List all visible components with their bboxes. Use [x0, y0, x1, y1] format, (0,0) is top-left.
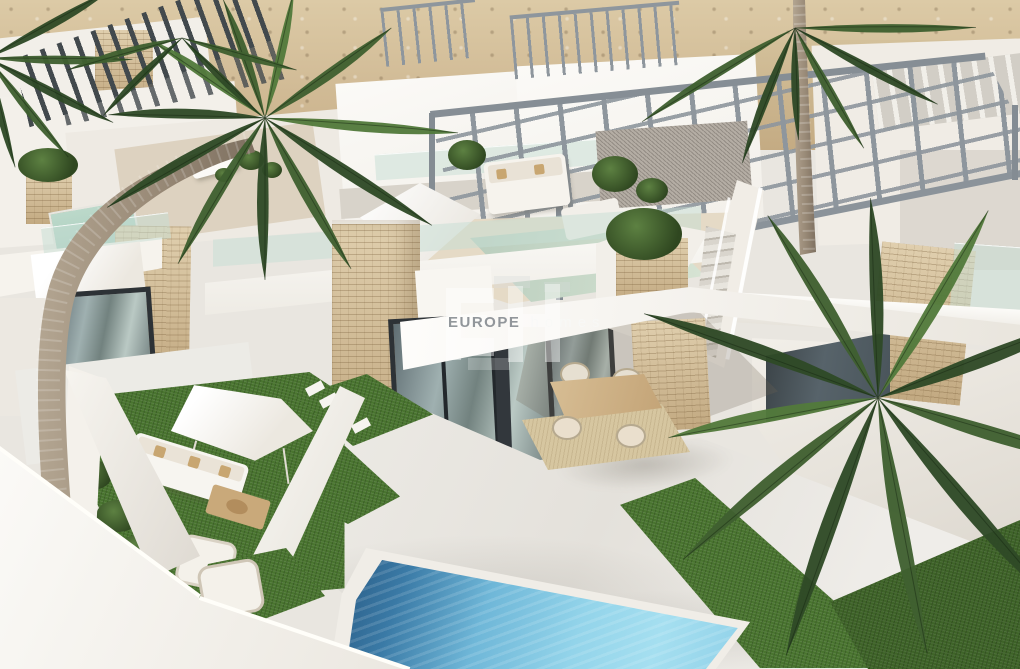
roof-plant	[636, 178, 668, 203]
roof-sofa	[483, 153, 571, 215]
roof-plant	[448, 140, 486, 170]
potted-plant	[262, 162, 282, 178]
planter-plant	[606, 208, 682, 260]
dining-chair	[552, 416, 582, 440]
dining-chair	[616, 424, 646, 448]
pergola-post	[1012, 105, 1018, 180]
serving-tray	[224, 497, 249, 517]
planter-plant	[18, 148, 78, 182]
throw-pillow	[534, 164, 545, 175]
villa-aerial-render: EUROPE homes	[0, 0, 1020, 669]
potted-plant	[238, 150, 264, 170]
potted-plant	[215, 168, 233, 182]
steel-pergola-frame	[380, 0, 481, 67]
roof-plant	[592, 156, 638, 192]
throw-pillow	[496, 168, 507, 179]
